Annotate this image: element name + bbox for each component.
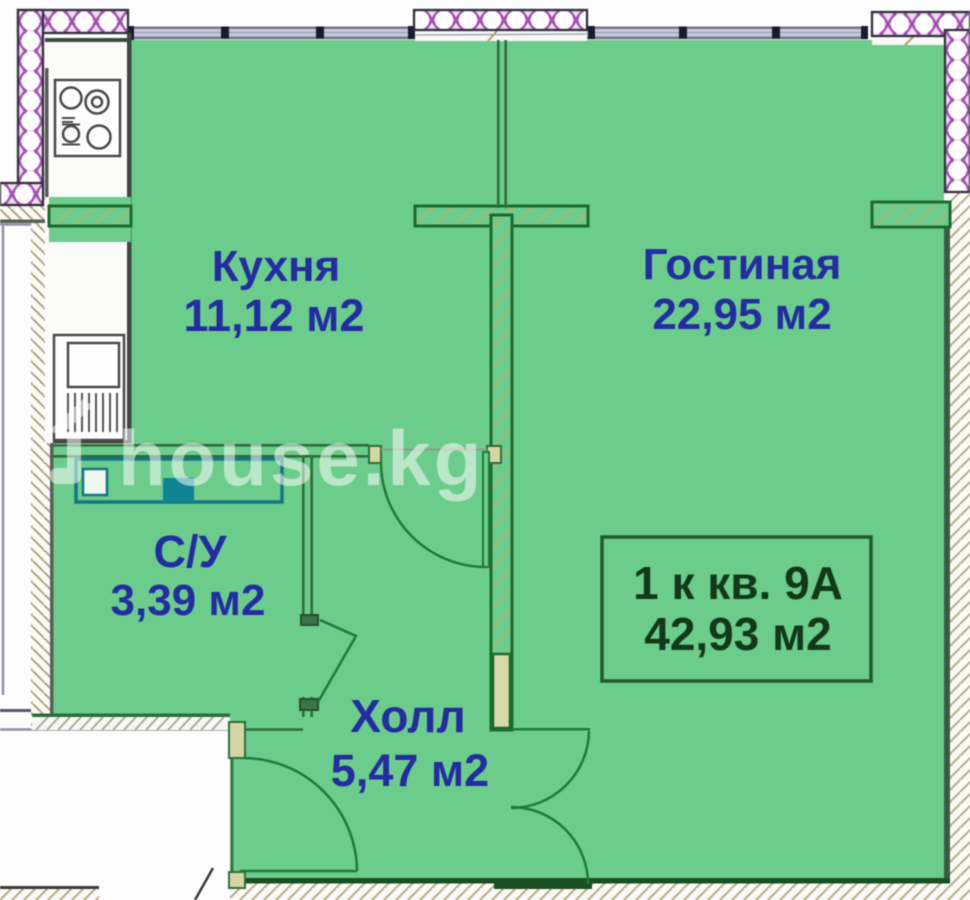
svg-text:С/У: С/У: [154, 526, 228, 577]
svg-text:11,12 м2: 11,12 м2: [184, 290, 365, 341]
svg-text:42,93 м2: 42,93 м2: [644, 608, 832, 660]
svg-text:3,39 м2: 3,39 м2: [111, 576, 266, 625]
svg-text:5,47 м2: 5,47 м2: [331, 745, 489, 796]
svg-text:22,95 м2: 22,95 м2: [652, 290, 831, 339]
svg-text:house.kg: house.kg: [118, 414, 484, 502]
svg-text:Холл: Холл: [350, 690, 465, 742]
svg-text:1 к кв. 9А: 1 к кв. 9А: [633, 557, 843, 609]
svg-text:Кухня: Кухня: [212, 242, 341, 291]
svg-text:Гостиная: Гостиная: [643, 240, 842, 289]
